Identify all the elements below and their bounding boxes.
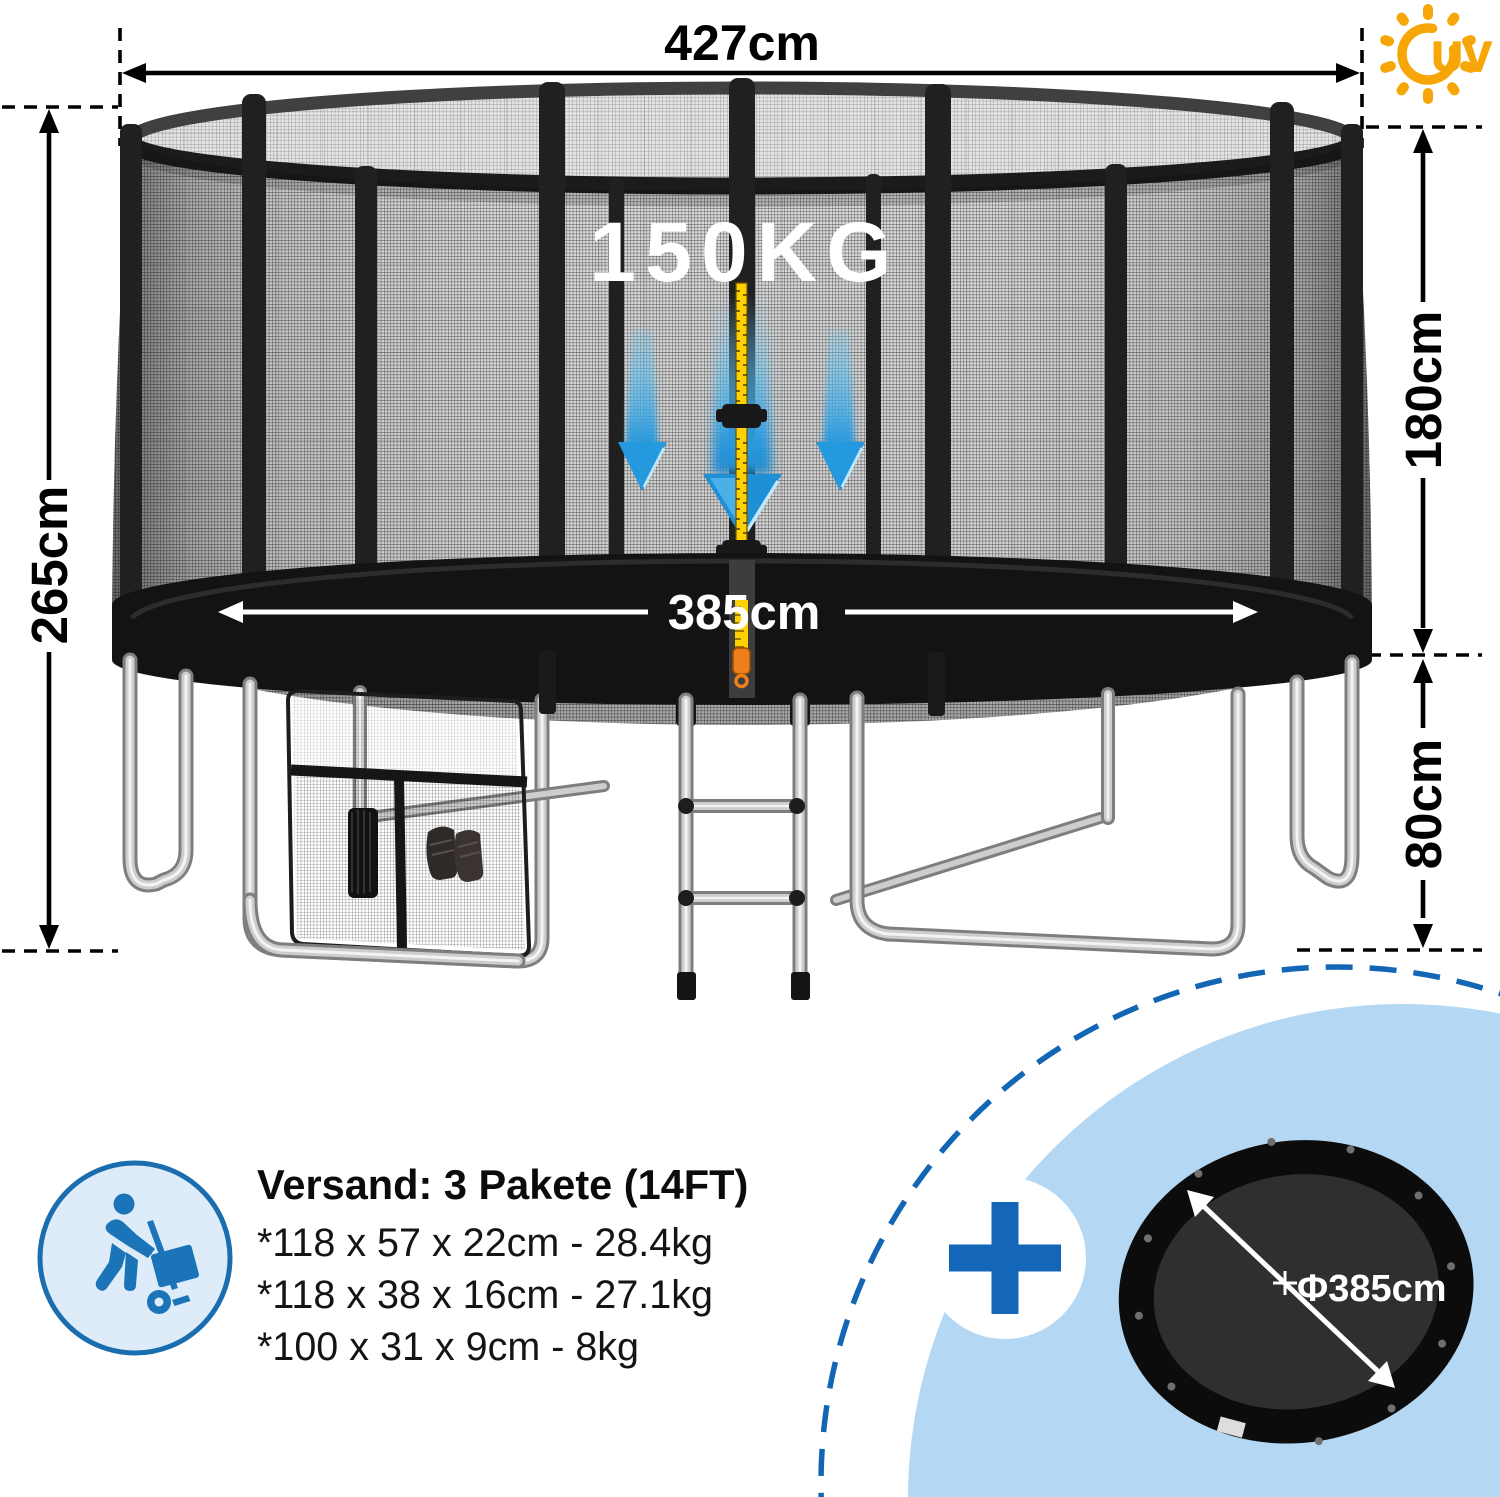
svg-text:*118 x 57 x 22cm - 28.4kg: *118 x 57 x 22cm - 28.4kg — [257, 1221, 713, 1265]
svg-text:Versand: 3 Pakete (14FT): Versand: 3 Pakete (14FT) — [257, 1161, 748, 1208]
svg-text:UV: UV — [1432, 33, 1492, 80]
svg-text:265cm: 265cm — [21, 486, 78, 645]
svg-text:Φ385cm: Φ385cm — [1297, 1268, 1447, 1310]
svg-text:180cm: 180cm — [1395, 311, 1452, 470]
svg-text:427cm: 427cm — [664, 15, 820, 71]
svg-text:80cm: 80cm — [1395, 739, 1452, 869]
svg-text:*118 x 38 x 16cm - 27.1kg: *118 x 38 x 16cm - 27.1kg — [257, 1273, 713, 1317]
svg-text:*100 x 31 x 9cm - 8kg: *100 x 31 x 9cm - 8kg — [257, 1325, 639, 1369]
svg-text:385cm: 385cm — [668, 586, 821, 640]
